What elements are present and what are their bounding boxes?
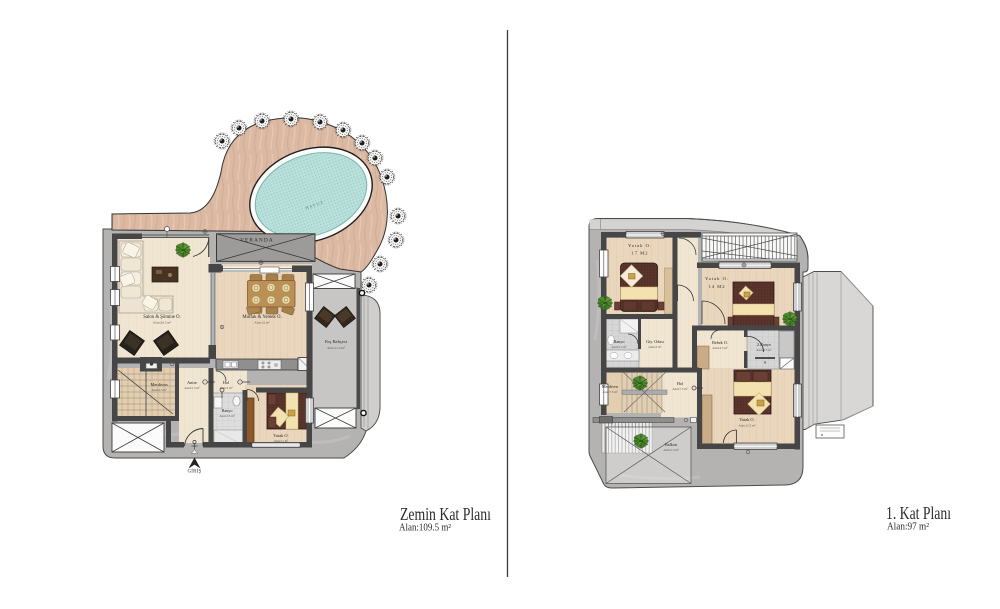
svg-text:Alan:4.5 m²: Alan:4.5 m² [151,388,166,392]
svg-text:Alan:3.5 m²: Alan:3.5 m² [756,348,771,352]
svg-text:Alan:5.5 m²: Alan:5.5 m² [184,386,199,390]
svg-text:GİRİŞ: GİRİŞ [187,469,201,475]
svg-text:17 M2: 17 M2 [631,251,648,256]
svg-text:Yatak O.: Yatak O. [739,417,754,422]
svg-text:Yatak O.: Yatak O. [705,276,729,281]
svg-text:Hol: Hol [677,381,684,386]
svg-text:Alan:26.5 m²: Alan:26.5 m² [153,321,171,325]
svg-text:Alan:15.5 m²: Alan:15.5 m² [739,424,756,428]
svg-text:Kış Bahçesi: Kış Bahçesi [325,339,348,344]
svg-text:Alan:2 m²: Alan:2 m² [220,386,233,390]
svg-text:Banyo: Banyo [222,408,233,413]
svg-text:Alan:3.5 m²: Alan:3.5 m² [219,414,234,418]
svg-text:Bebek O.: Bebek O. [712,340,728,345]
svg-text:Balkon: Balkon [665,442,678,447]
svg-text:14 M2: 14 M2 [708,284,725,289]
svg-text:Banyo: Banyo [614,339,625,344]
svg-text:Alan:7.5 m²: Alan:7.5 m² [602,390,617,394]
svg-text:Alan:109.5 m²: Alan:109.5 m² [399,523,451,534]
svg-text:Merdiven: Merdiven [602,384,619,389]
svg-text:Merdiven: Merdiven [150,382,168,387]
svg-text:Giy. Odası: Giy. Odası [646,339,665,344]
svg-text:Alan:22 m²: Alan:22 m² [254,321,269,325]
svg-text:2.Banyo: 2.Banyo [757,342,771,347]
svg-text:Alan:3 m²: Alan:3 m² [649,345,662,349]
svg-text:Zemin Kat Planı: Zemin Kat Planı [400,504,491,524]
svg-text:1. Kat Planı: 1. Kat Planı [886,503,951,523]
svg-text:Alan:4.5 m²: Alan:4.5 m² [712,346,727,350]
svg-text:Alan:7.5 m²: Alan:7.5 m² [672,387,687,391]
svg-text:Salon & Şömine O.: Salon & Şömine O. [143,315,181,320]
svg-text:Yatak O.: Yatak O. [273,433,288,438]
svg-text:Alan:11 m²: Alan:11 m² [274,439,288,443]
svg-text:Yatak O.: Yatak O. [628,243,652,248]
svg-text:Mutfak & Yemek O.: Mutfak & Yemek O. [242,315,281,320]
svg-text:VERANDA: VERANDA [240,238,274,244]
svg-text:Antre: Antre [187,380,197,385]
svg-text:Hol: Hol [223,380,230,385]
svg-text:Alan:5.5 m²: Alan:5.5 m² [663,448,678,452]
svg-text:Alan:5.5 m²: Alan:5.5 m² [611,345,626,349]
svg-text:Alan:11.5 m²: Alan:11.5 m² [327,346,345,350]
svg-text:Alan:97 m²: Alan:97 m² [887,522,929,533]
